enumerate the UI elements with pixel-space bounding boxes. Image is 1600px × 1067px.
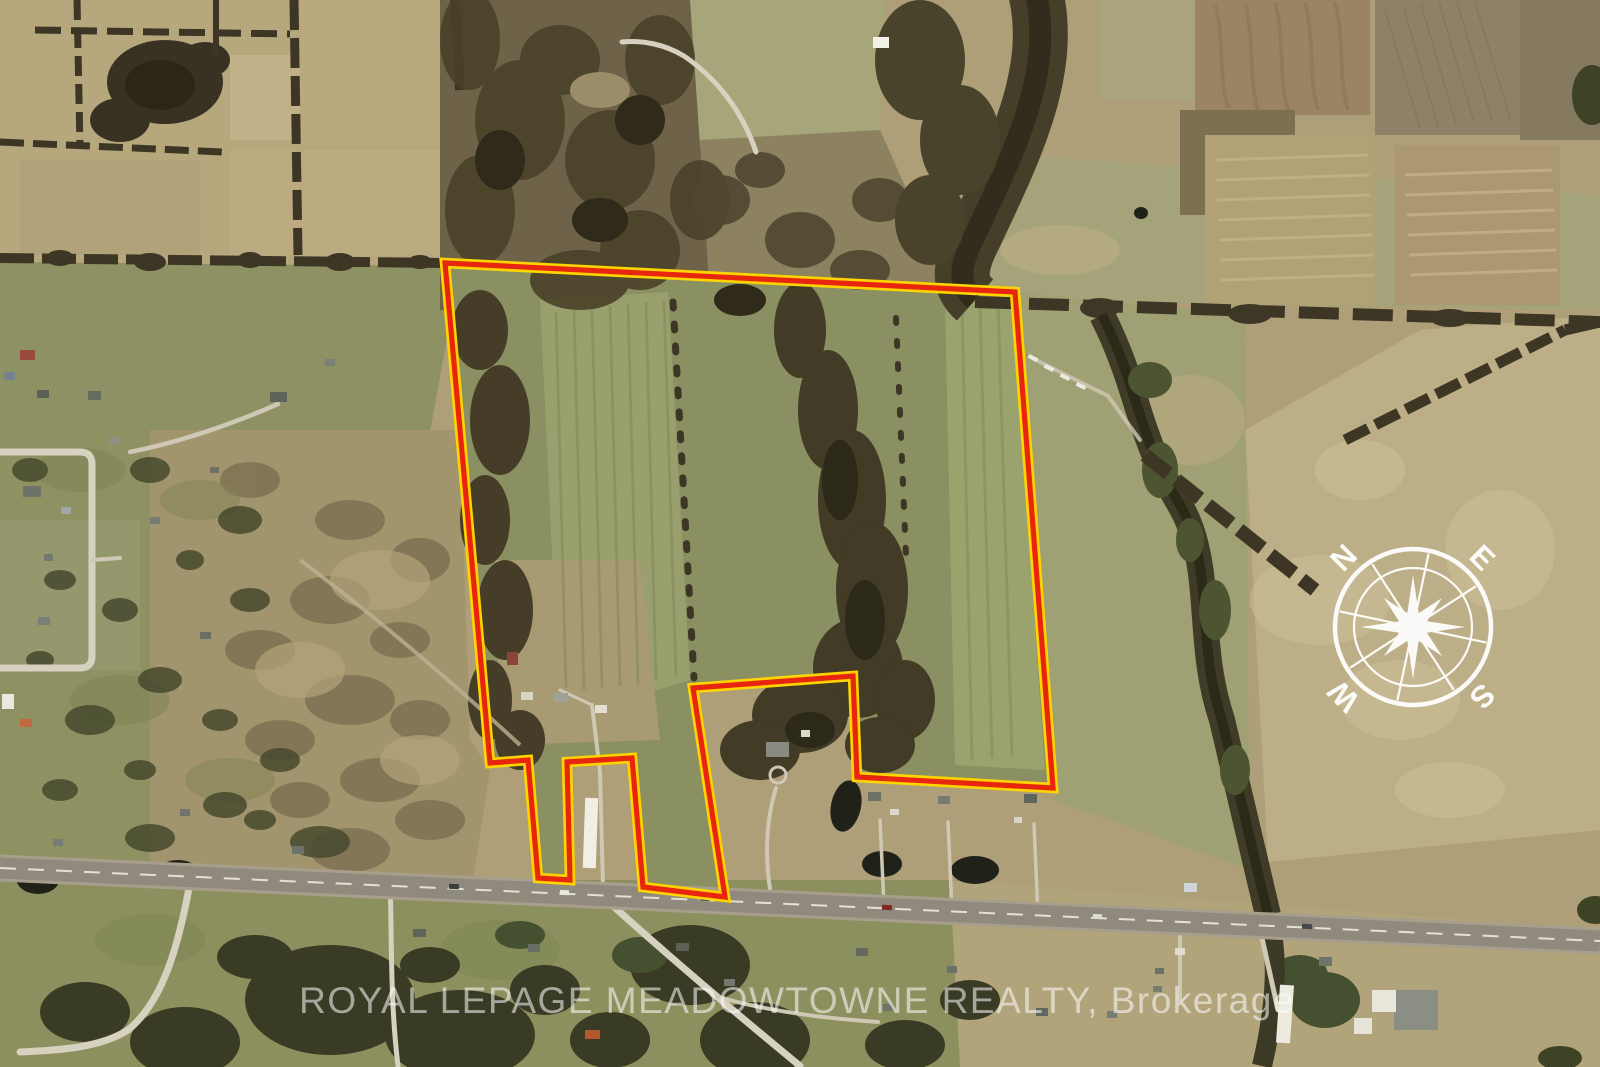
brokerage-watermark: ROYAL LEPAGE MEADOWTOWNE REALTY, Brokera… <box>299 980 1295 1021</box>
aerial-listing-photo: N E S W ROYAL LEPAGE MEADOWTOWNE REALTY,… <box>0 0 1600 1067</box>
aerial-scene: N E S W ROYAL LEPAGE MEADOWTOWNE REALTY,… <box>0 0 1600 1067</box>
